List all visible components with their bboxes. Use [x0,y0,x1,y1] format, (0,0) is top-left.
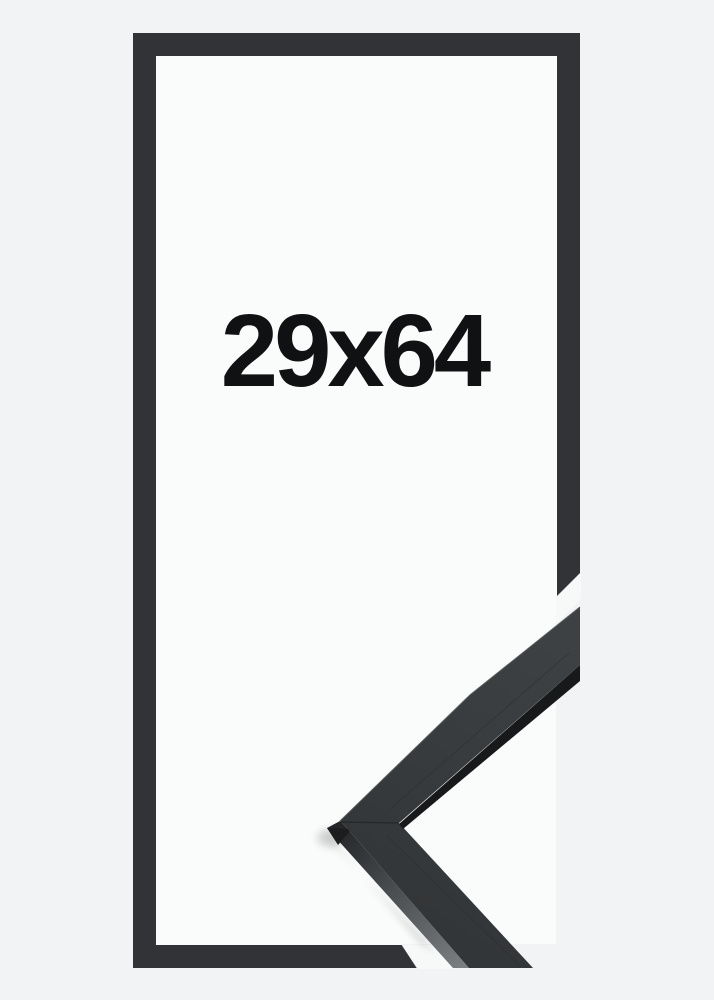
size-label: 29x64 [221,293,491,408]
frame-illustration: 29x64 [0,0,714,1000]
miter-seam [341,822,398,823]
frame-product-image: 29x64 [0,0,714,1000]
